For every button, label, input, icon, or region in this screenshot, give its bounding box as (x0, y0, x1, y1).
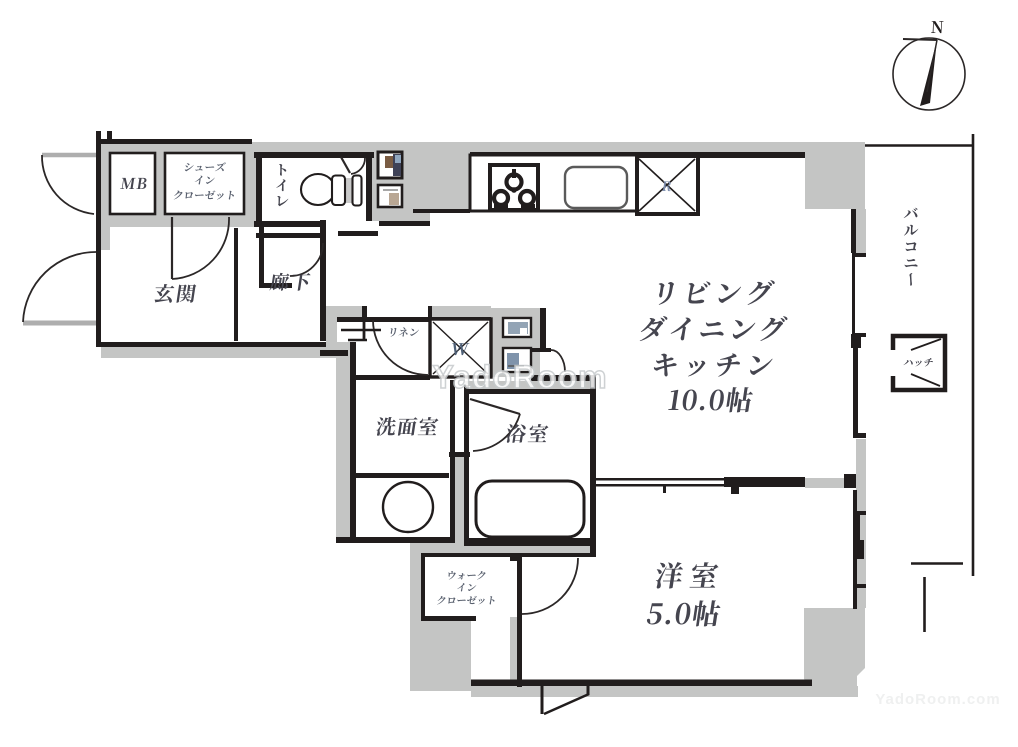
svg-text:YadoRoom: YadoRoom (432, 359, 607, 395)
svg-text:YadoRoom.com: YadoRoom.com (875, 691, 1000, 708)
